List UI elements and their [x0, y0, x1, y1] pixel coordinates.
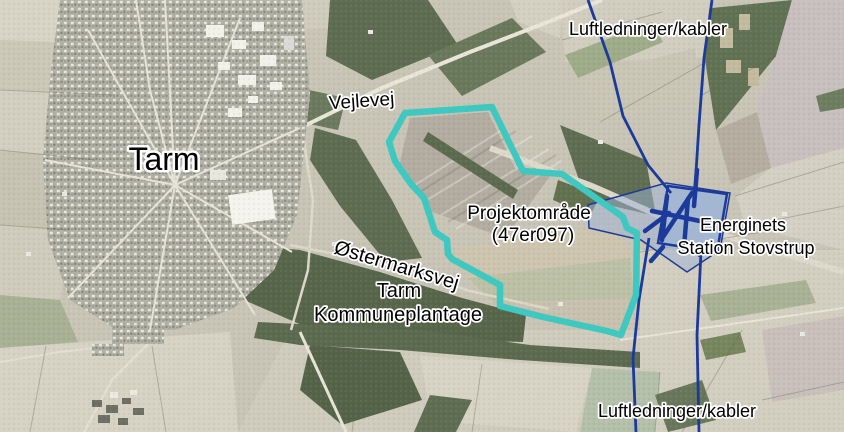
label-project-area-line1: Projektområde [467, 203, 591, 224]
label-plantation-line2: Kommuneplantage [314, 304, 482, 326]
label-plantation-line1: Tarm [377, 280, 421, 302]
map-figure: Luftledninger/kabler Vejlevej Tarm Proje… [0, 0, 844, 432]
label-overhead-lines-bottom: Luftledninger/kabler [598, 401, 756, 421]
map-canvas: Luftledninger/kabler Vejlevej Tarm Proje… [0, 0, 844, 432]
label-town-tarm: Tarm [128, 141, 199, 177]
label-overhead-lines-top: Luftledninger/kabler [569, 19, 727, 39]
label-station-line1: Energinets [700, 215, 786, 235]
label-station-line2: Station Stovstrup [677, 238, 814, 258]
label-project-area-line2: (47er097) [492, 225, 574, 246]
